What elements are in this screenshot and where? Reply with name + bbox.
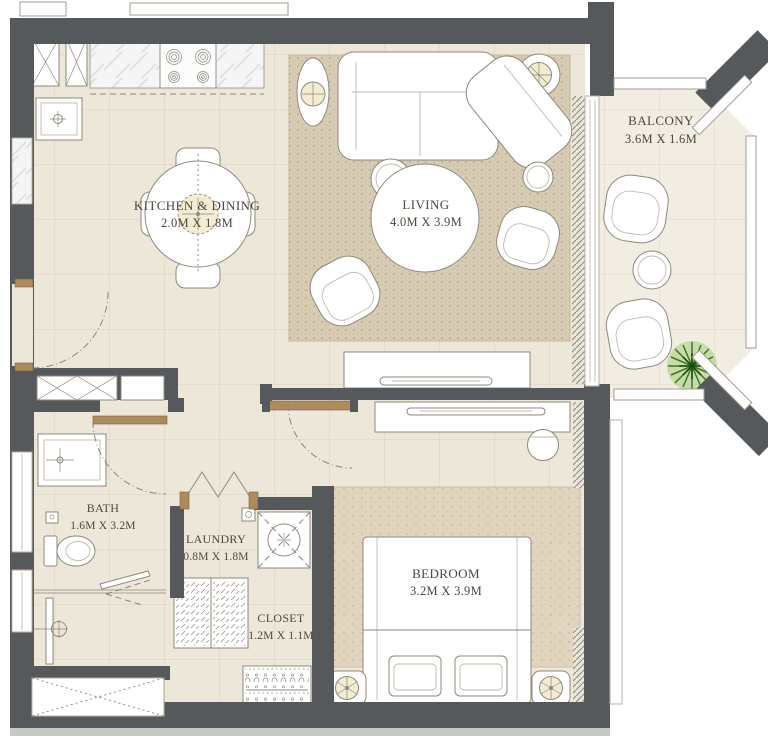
pillow-icon [389, 656, 441, 696]
pillow-icon [455, 656, 507, 696]
desk-icon [375, 402, 570, 432]
detergent-box [242, 508, 255, 521]
kitchen-dining-label: KITCHEN & DINING [134, 198, 260, 213]
vanity-sink-icon [38, 434, 106, 486]
kitchen-cabinet-icon [66, 38, 87, 86]
floor-plant-icon [297, 58, 329, 126]
closet-dims: 1.2M X 1.1M [248, 630, 313, 642]
exterior-ledge [20, 2, 66, 16]
kitchen-dining-dims: 2.0M X 1.8M [161, 216, 233, 230]
window-seam [573, 402, 584, 488]
balcony-label: BALCONY [628, 113, 694, 128]
shower-window [12, 570, 32, 632]
balcony-dims: 3.6M X 1.6M [625, 132, 697, 146]
washing-machine-icon [258, 512, 310, 568]
refrigerator-icon [32, 38, 59, 86]
service-shaft [32, 678, 164, 716]
nightstand-icon [532, 671, 570, 705]
closet-label: CLOSET [257, 611, 305, 625]
bedroom-door-icon [268, 401, 352, 410]
accessory-box [46, 512, 58, 523]
exterior-ledge [610, 420, 622, 704]
kitchen-window [12, 138, 32, 204]
window-seam [572, 96, 585, 384]
cooktop-icon [160, 42, 216, 88]
balcony-railing [614, 78, 706, 89]
bedroom-dims: 3.2M X 3.9M [410, 584, 482, 598]
bed-icon [363, 537, 531, 703]
balcony-railing [614, 389, 704, 400]
laundry-dims: 0.8M X 1.8M [183, 551, 248, 563]
balcony-table-icon [633, 251, 671, 289]
living-label: LIVING [402, 197, 449, 212]
tv-console-icon [344, 352, 530, 388]
toilet-icon [44, 536, 95, 566]
side-table-icon [523, 162, 553, 192]
bath-dims: 1.6M X 3.2M [70, 520, 135, 532]
laundry-label: LAUNDRY [186, 532, 246, 546]
entry-doorway [12, 284, 33, 366]
bath-doorway [100, 400, 168, 412]
bath-window [12, 452, 32, 552]
floor-plan: KITCHEN & DINING 2.0M X 1.8M LIVING 4.0M… [0, 0, 768, 736]
bedroom-label: BEDROOM [412, 566, 480, 581]
bath-label: BATH [87, 501, 120, 515]
floor-plan-drawing: KITCHEN & DINING 2.0M X 1.8M LIVING 4.0M… [0, 0, 768, 736]
bath-door-icon [93, 416, 167, 424]
window-seam [573, 628, 584, 702]
living-balcony-window [585, 96, 599, 386]
wardrobe-icon [174, 578, 248, 648]
desk-chair-icon [528, 430, 559, 461]
entry-storage [37, 376, 164, 400]
kitchen-sink-icon [36, 98, 82, 140]
exterior-ledge [130, 3, 288, 15]
living-dims: 4.0M X 3.9M [390, 215, 462, 229]
balcony-railing [746, 136, 756, 348]
